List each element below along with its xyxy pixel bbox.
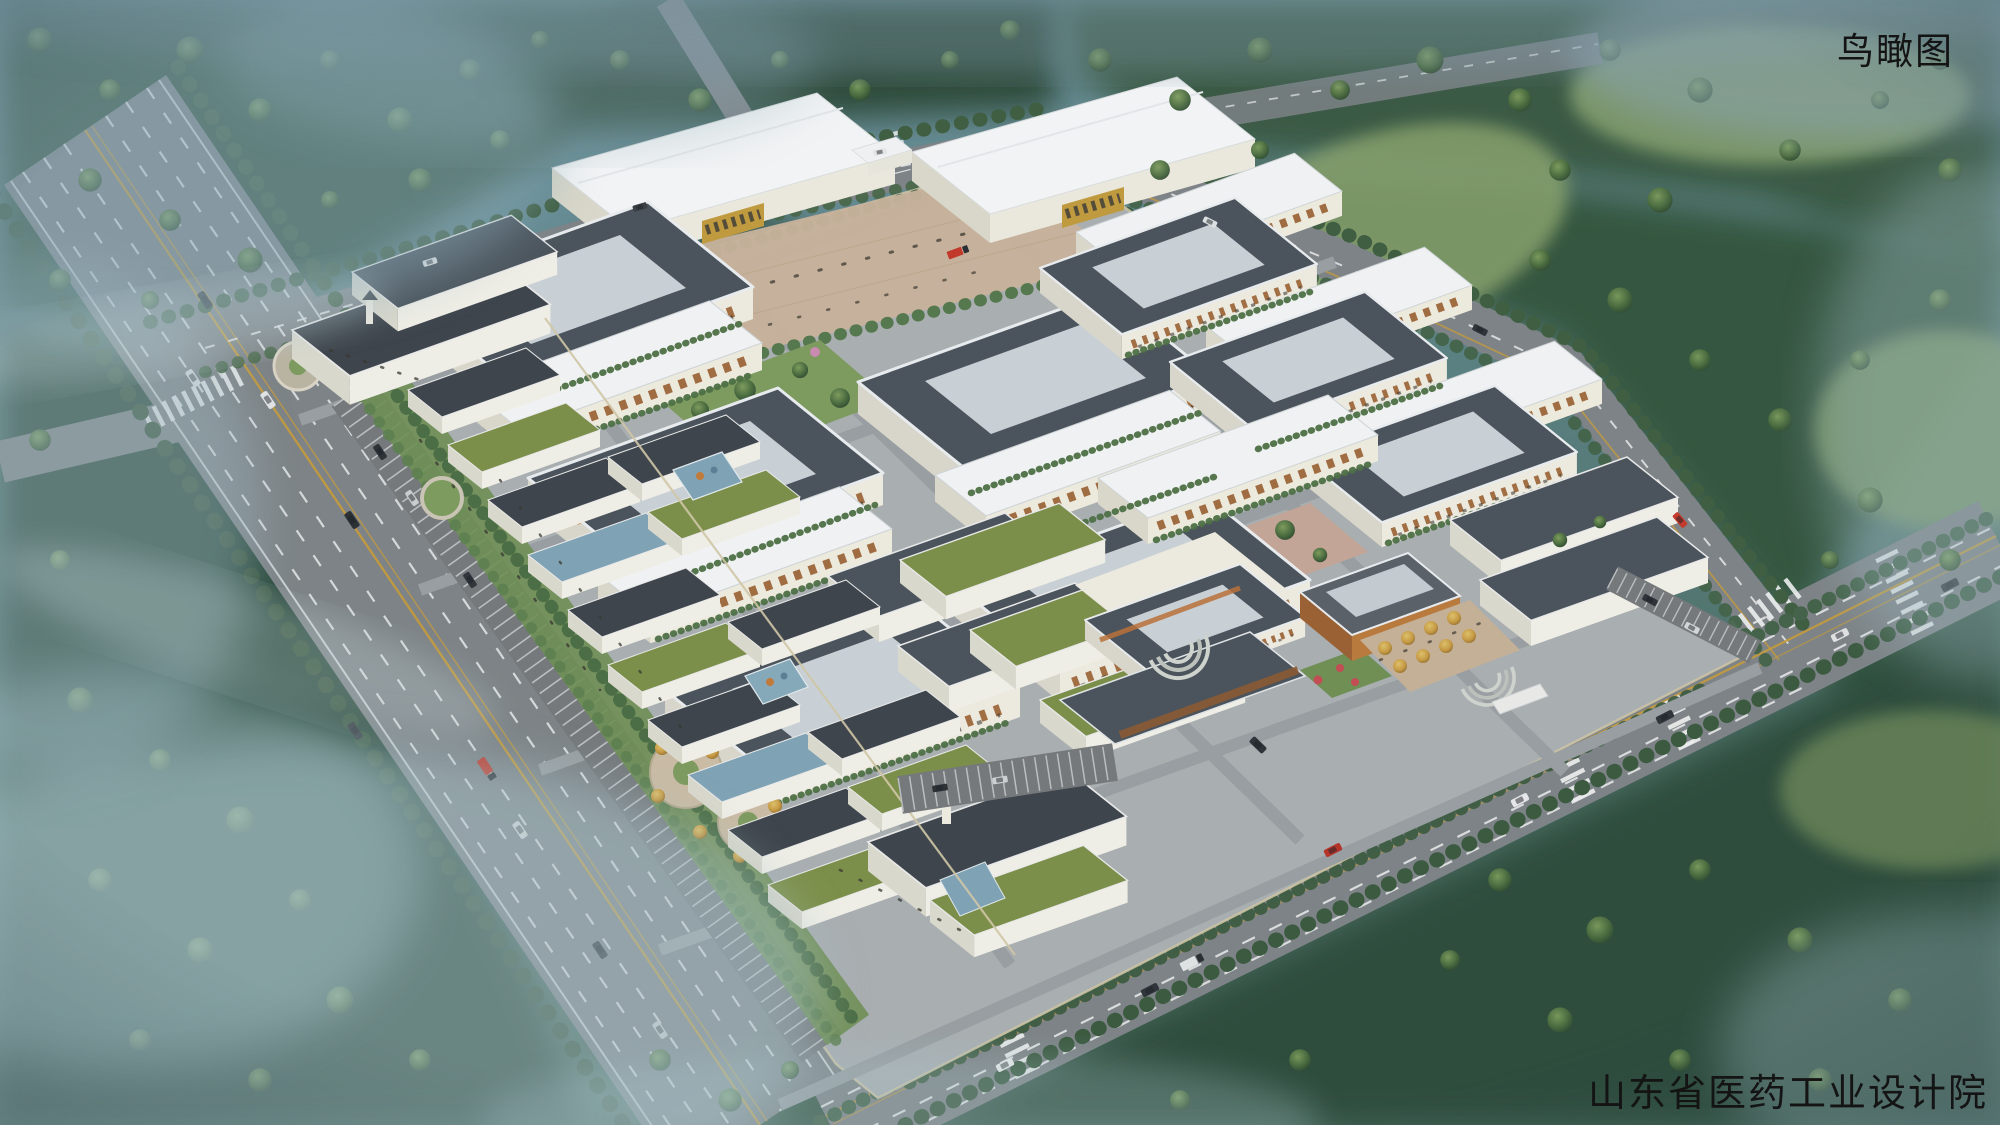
view-title-label: 鸟瞰图 [1837,21,1954,75]
aerial-rendering-page: 鸟瞰图 山东省医药工业设计院 [0,0,2000,1125]
scene-svg [0,0,2000,1125]
mist-overlay [0,0,2000,1125]
design-institute-label: 山东省医药工业设计院 [1588,1062,1988,1117]
